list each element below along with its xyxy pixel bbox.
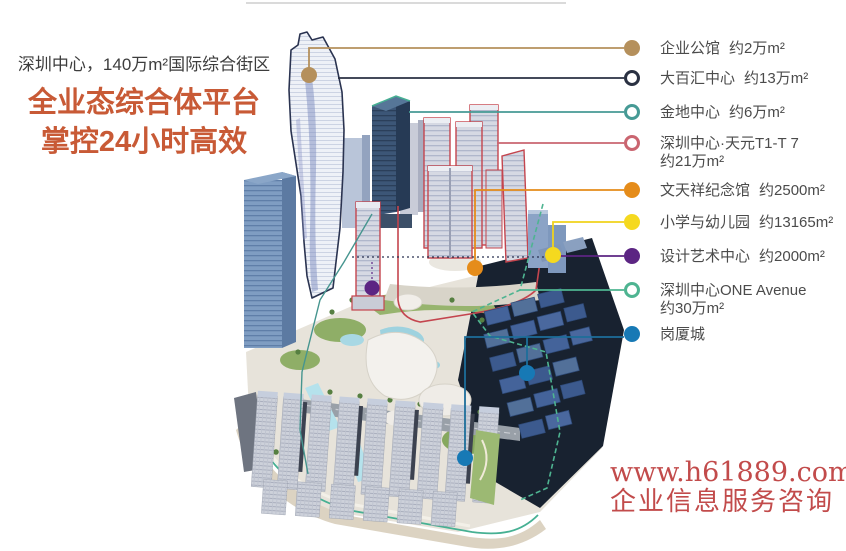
legend-marker-dot	[624, 70, 640, 86]
legend-item-label: 深圳中心·天元T1-T 7	[660, 135, 799, 152]
legend-item-1: 企业公馆约2万m²	[624, 40, 785, 58]
leader-qiyegongguan	[309, 48, 624, 73]
legend-item-label: 设计艺术中心	[660, 248, 750, 265]
legend-marker-dot	[624, 104, 640, 120]
legend-item-text: 岗厦城	[660, 326, 705, 344]
legend-item-text: 深圳中心·天元T1-T 7约21万m²	[660, 135, 799, 171]
marker-ganxia-1	[519, 365, 535, 381]
legend-item-label: 企业公馆	[660, 40, 720, 57]
legend-item-text: 深圳中心ONE Avenue约30万m²	[660, 282, 806, 318]
marker-wentianxiang	[467, 260, 483, 276]
marker-school	[545, 247, 561, 263]
tower-t7	[502, 150, 528, 262]
marker-design-art	[365, 281, 380, 296]
legend-item-area: 约21万m²	[660, 153, 799, 171]
legend-item-3: 金地中心约6万m²	[624, 104, 785, 122]
legend-item-area: 约2000m²	[759, 248, 825, 265]
legend-item-label: 岗厦城	[660, 326, 705, 343]
legend-item-area: 约2万m²	[729, 40, 785, 57]
legend-marker-dot	[624, 282, 640, 298]
marker-ganxia-2	[457, 450, 473, 466]
legend-item-area: 约2500m²	[759, 182, 825, 199]
legend-item-5: 文天祥纪念馆约2500m²	[624, 182, 825, 200]
legend-item-text: 金地中心约6万m²	[660, 104, 785, 122]
headline-line2: 掌控24小时高效	[6, 123, 282, 162]
legend-item-label: 金地中心	[660, 104, 720, 121]
legend-item-area: 约6万m²	[729, 104, 785, 121]
legend-item-label: 文天祥纪念馆	[660, 182, 750, 199]
promo-infographic: 深圳中心，140万m²国际综合街区 全业态综合体平台 掌控24小时高效 企业公馆…	[0, 0, 846, 551]
legend-marker-dot	[624, 214, 640, 230]
watermark: www.h61889.com 企业信息服务咨询	[610, 459, 846, 516]
watermark-url: www.h61889.com	[610, 459, 846, 487]
legend-item-text: 小学与幼儿园约13165m²	[660, 214, 833, 232]
legend-item-area: 约13165m²	[759, 214, 833, 231]
legend-marker-dot	[624, 40, 640, 56]
legend-item-7: 设计艺术中心约2000m²	[624, 248, 825, 266]
legend-item-text: 企业公馆约2万m²	[660, 40, 785, 58]
legend-marker-dot	[624, 248, 640, 264]
legend-item-label: 深圳中心ONE Avenue	[660, 282, 806, 299]
legend-item-text: 文天祥纪念馆约2500m²	[660, 182, 825, 200]
legend-item-text: 设计艺术中心约2000m²	[660, 248, 825, 266]
legend-item-4: 深圳中心·天元T1-T 7约21万m²	[624, 135, 799, 171]
legend-item-9: 岗厦城	[624, 326, 705, 344]
legend-marker-dot	[624, 182, 640, 198]
watermark-caption: 企业信息服务咨询	[610, 488, 846, 516]
legend-item-text: 大百汇中心约13万m²	[660, 70, 808, 88]
legend-marker-dot	[624, 135, 640, 151]
legend-item-6: 小学与幼儿园约13165m²	[624, 214, 833, 232]
legend-item-area: 约30万m²	[660, 300, 806, 318]
legend-item-area: 约13万m²	[744, 70, 808, 87]
tower-curved-supertall	[289, 32, 344, 298]
tower-left-slab	[244, 172, 296, 348]
marker-qiyegongguan	[301, 67, 317, 83]
headline-line1: 全业态综合体平台	[6, 84, 282, 123]
project-subtitle: 深圳中心，140万m²国际综合街区	[6, 50, 282, 75]
right-mid-towers	[528, 210, 566, 273]
legend-marker-dot	[624, 326, 640, 342]
legend-item-2: 大百汇中心约13万m²	[624, 70, 808, 88]
legend-item-label: 大百汇中心	[660, 70, 735, 87]
legend-item-label: 小学与幼儿园	[660, 214, 750, 231]
legend-item-8: 深圳中心ONE Avenue约30万m²	[624, 282, 806, 318]
title-block: 深圳中心，140万m²国际综合街区 全业态综合体平台 掌控24小时高效	[6, 50, 282, 162]
headline: 全业态综合体平台 掌控24小时高效	[6, 84, 282, 162]
